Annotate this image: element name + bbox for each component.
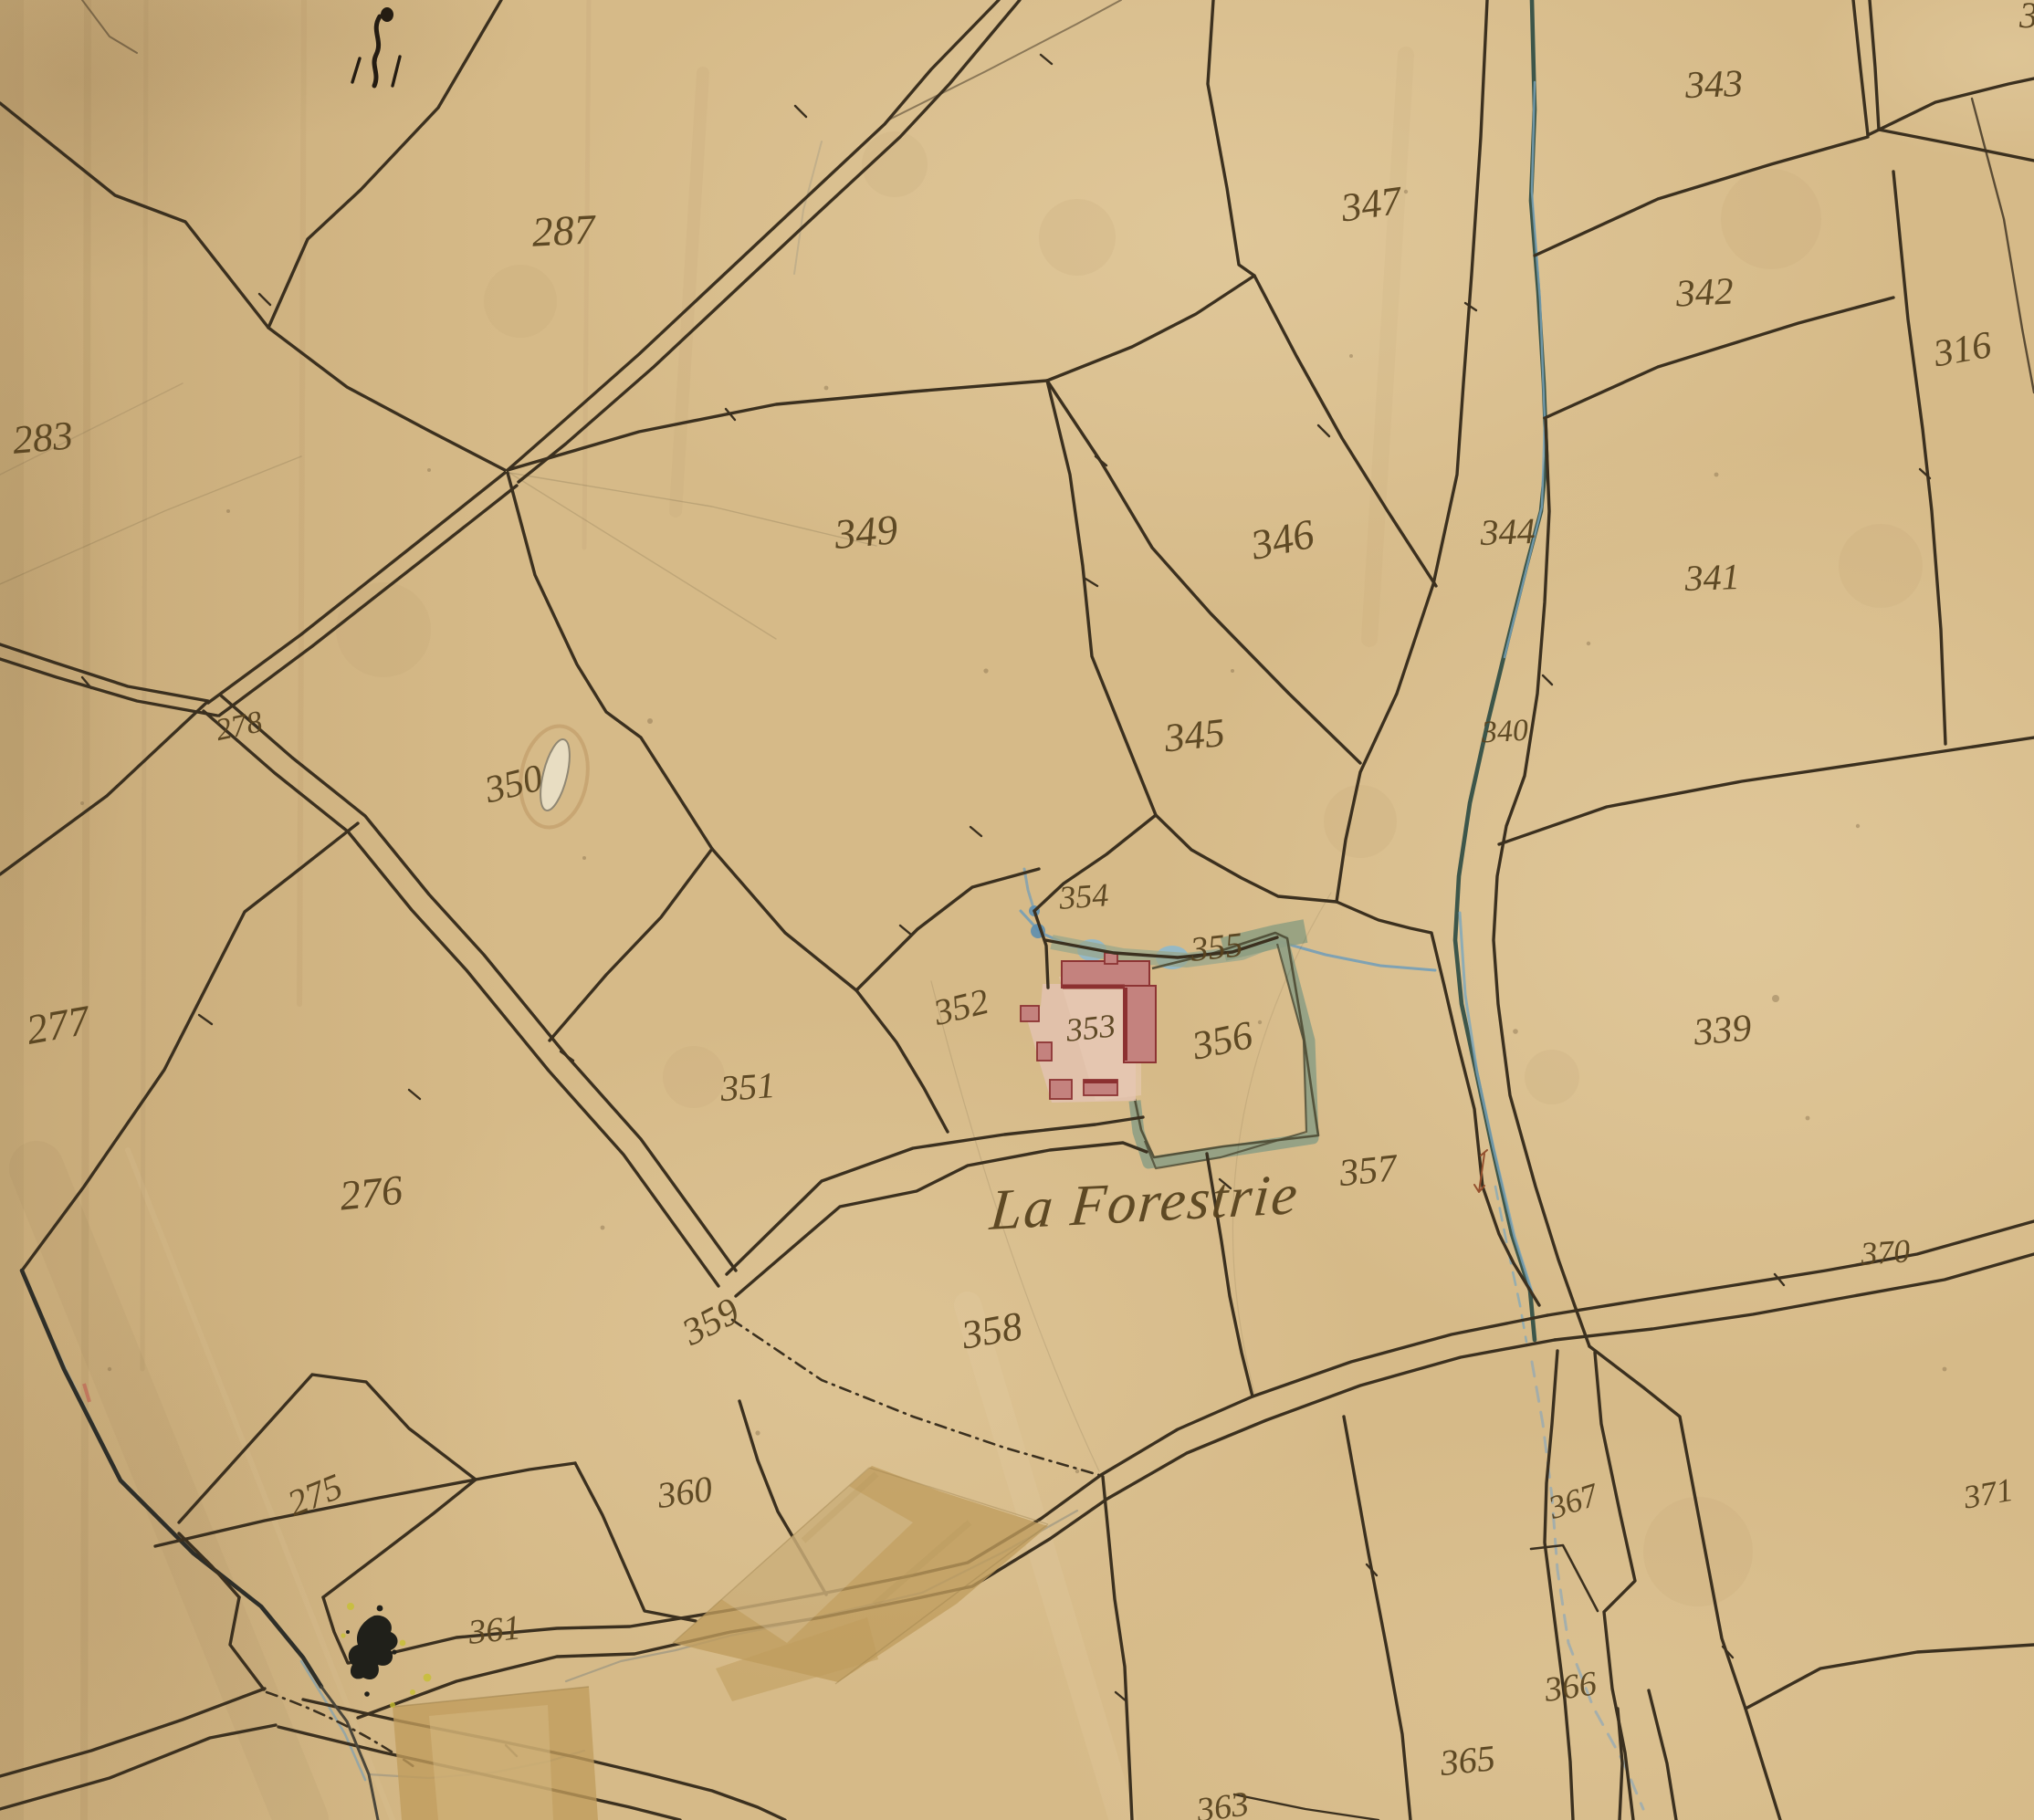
svg-text:365: 365 <box>1437 1737 1496 1783</box>
svg-text:283: 283 <box>11 413 75 463</box>
svg-text:345: 345 <box>1161 710 1227 761</box>
svg-text:287: 287 <box>530 205 598 256</box>
svg-text:357: 357 <box>1337 1147 1400 1196</box>
svg-text:366: 366 <box>1541 1664 1599 1710</box>
svg-text:347: 347 <box>1337 178 1406 231</box>
svg-text:349: 349 <box>832 506 899 558</box>
svg-text:351: 351 <box>718 1064 777 1109</box>
svg-text:341: 341 <box>1683 556 1741 599</box>
svg-text:355: 355 <box>1188 926 1244 969</box>
svg-text:3: 3 <box>2018 0 2034 36</box>
svg-text:343: 343 <box>1683 63 1744 107</box>
svg-text:360: 360 <box>654 1468 715 1516</box>
svg-text:354: 354 <box>1057 876 1110 916</box>
svg-text:361: 361 <box>466 1608 522 1652</box>
svg-text:339: 339 <box>1691 1007 1753 1053</box>
svg-text:344: 344 <box>1479 510 1536 553</box>
svg-text:370: 370 <box>1859 1232 1912 1272</box>
svg-text:353: 353 <box>1064 1007 1117 1049</box>
svg-text:363: 363 <box>1193 1784 1251 1820</box>
svg-text:276: 276 <box>337 1166 404 1219</box>
svg-text:342: 342 <box>1674 270 1735 315</box>
svg-text:340: 340 <box>1480 714 1529 750</box>
